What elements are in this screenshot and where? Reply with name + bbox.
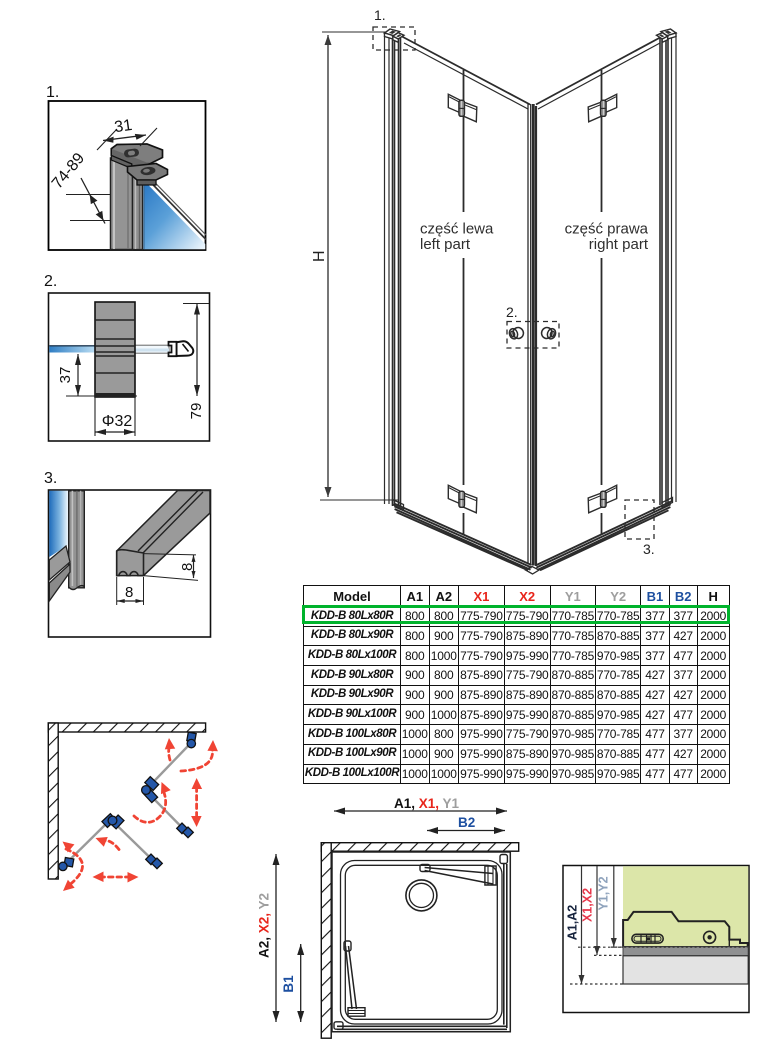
svg-text:79: 79 bbox=[188, 403, 205, 420]
svg-text:8: 8 bbox=[125, 584, 133, 601]
svg-text:X1,X2: X1,X2 bbox=[581, 888, 595, 922]
svg-text:2.: 2. bbox=[44, 273, 57, 290]
svg-text:left part: left part bbox=[420, 236, 471, 253]
svg-text:część lewa: część lewa bbox=[420, 221, 494, 238]
svg-text:1.: 1. bbox=[374, 7, 386, 23]
svg-text:A1, X1, Y1: A1, X1, Y1 bbox=[394, 796, 460, 811]
svg-text:Y1,Y2: Y1,Y2 bbox=[597, 876, 611, 910]
svg-text:Φ32: Φ32 bbox=[102, 413, 133, 430]
svg-text:B1: B1 bbox=[281, 975, 296, 993]
svg-text:A1,A2: A1,A2 bbox=[566, 905, 580, 940]
svg-text:H: H bbox=[311, 250, 328, 262]
svg-text:3.: 3. bbox=[643, 541, 655, 557]
svg-text:A2, X2, Y2: A2, X2, Y2 bbox=[257, 893, 272, 958]
svg-text:31: 31 bbox=[113, 117, 133, 136]
svg-text:część prawa: część prawa bbox=[565, 221, 649, 238]
svg-text:2.: 2. bbox=[506, 304, 518, 320]
svg-text:3.: 3. bbox=[44, 470, 57, 487]
svg-text:37: 37 bbox=[57, 367, 74, 384]
svg-text:8: 8 bbox=[179, 563, 196, 571]
svg-text:1.: 1. bbox=[46, 84, 59, 101]
svg-text:B2: B2 bbox=[458, 815, 475, 830]
svg-text:right part: right part bbox=[589, 236, 649, 253]
